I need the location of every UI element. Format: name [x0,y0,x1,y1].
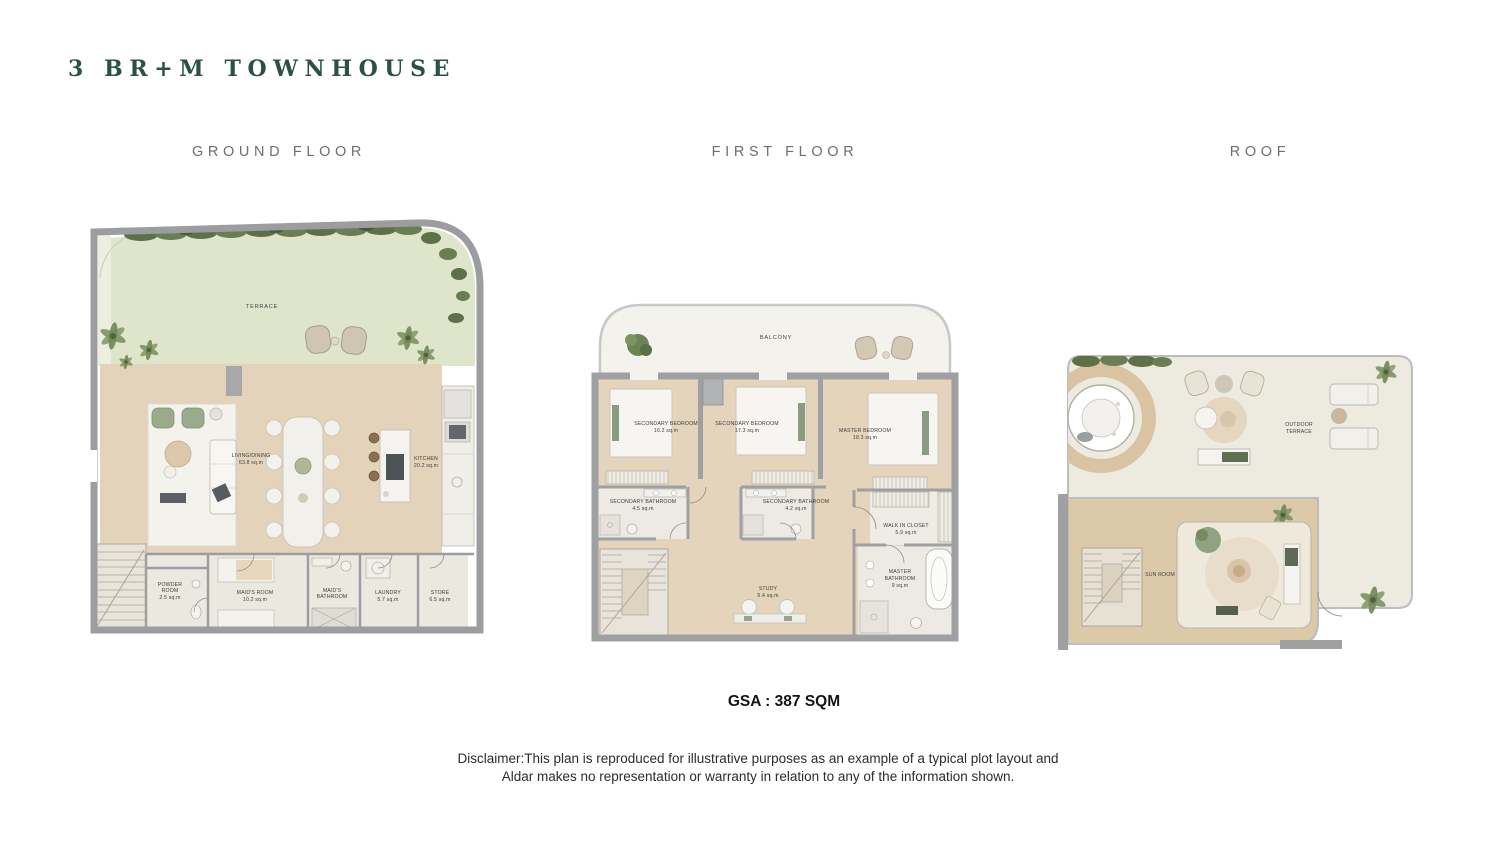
column-header-roof: ROOF [1230,144,1290,160]
label-bathroom1: SECONDARY BATHROOM [610,499,677,505]
first-floor-plan: BALCONY SECONDARY BEDROOM 16.2 sq.m SECO… [586,301,966,646]
area-master-bath: 9 sq.m [892,583,909,589]
label-store: STORE [431,590,450,596]
label-maids-room: MAID'S ROOM [237,590,274,596]
disclaimer-line-2: Aldar makes no representation or warrant… [208,768,1308,786]
ground-entrance-opening [88,450,97,482]
ground-floor-plan: TERRACE LIVING/DINING 63.8 sq.m KITCHEN … [86,214,496,640]
area-bedroom2: 17.3 sq.m [735,428,759,434]
living-area-furniture [148,404,236,546]
area-bathroom1: 4.5 sq.m [632,506,653,512]
wic-closet-top [873,492,929,507]
first-floor-stairs [600,549,668,637]
label-bedroom1: SECONDARY BEDROOM [634,421,698,427]
label-outdoor-terrace-2: TERRACE [1286,429,1312,435]
ground-stairs-floor [93,544,146,632]
roof-left-wall [1058,494,1068,650]
column-header-ground-floor: GROUND FLOOR [192,144,366,160]
area-store: 6.5 sq.m [429,597,450,603]
label-maids-bathroom-2: BATHROOM [317,594,348,600]
area-living-dining: 63.8 sq.m [239,460,263,466]
roof-plan: OUTDOOR TERRACE SUN ROOM [1056,348,1421,653]
area-study: 5.4 sq.m [757,593,778,599]
area-bedroom1: 16.2 sq.m [654,428,678,434]
disclaimer-line-1: Disclaimer:This plan is reproduced for i… [208,750,1308,768]
roof-bottom-wall [1280,640,1342,649]
disclaimer: Disclaimer:This plan is reproduced for i… [208,750,1308,785]
area-powder-room: 2.5 sq.m [159,595,180,601]
area-master-bedroom: 18.3 sq.m [853,435,877,441]
label-bathroom2: SECONDARY BATHROOM [763,499,830,505]
gsa-total-area: GSA : 387 SQM [728,693,840,711]
area-bathroom2: 4.2 sq.m [785,506,806,512]
roof-stairs [1082,548,1142,626]
label-kitchen: KITCHEN [414,456,438,462]
label-terrace: TERRACE [246,304,278,310]
area-laundry: 5.7 sq.m [377,597,398,603]
wardrobe-bedroom1 [606,471,668,484]
label-balcony: BALCONY [760,335,792,341]
label-sun-room: SUN ROOM [1145,572,1175,578]
area-maids-room: 10.2 sq.m [243,597,267,603]
area-kitchen: 20.2 sq.m [414,463,438,469]
label-bedroom2: SECONDARY BEDROOM [715,421,779,427]
label-outdoor-terrace-1: OUTDOOR [1285,422,1313,428]
column-header-first-floor: FIRST FLOOR [712,144,859,160]
jacuzzi [1068,385,1134,451]
entry-wall-stub [226,366,242,396]
label-laundry: LAUNDRY [375,590,401,596]
area-walk-in-closet: 5.9 sq.m [895,530,916,536]
label-living-dining: LIVING/DINING [232,453,271,459]
wardrobe-master [873,477,927,489]
label-master-bath-2: BATHROOM [885,576,916,582]
balcony-door-2 [759,372,787,380]
wardrobe-bedroom2 [752,471,814,484]
balcony-door-3 [889,372,917,380]
page-title: 3 BR+M TOWNHOUSE [68,56,456,82]
label-walk-in-closet: WALK IN CLOSET [883,523,929,529]
label-master-bedroom: MASTER BEDROOM [839,428,891,434]
label-master-bath-1: MASTER [889,569,912,575]
label-study: STUDY [759,586,778,592]
kitchen-counter [442,386,474,546]
label-powder-room-2: ROOM [162,588,179,594]
balcony-door-1 [630,372,658,380]
